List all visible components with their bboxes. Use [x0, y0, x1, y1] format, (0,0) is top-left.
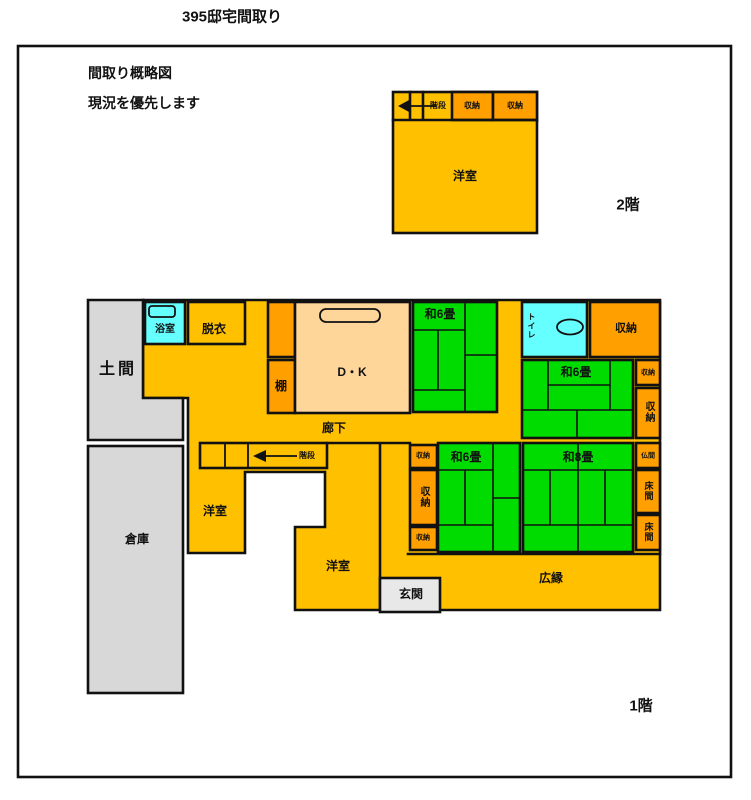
f2-closet2-label: 収納: [507, 102, 523, 110]
f2-closet1-label: 収納: [464, 102, 480, 110]
closet-c-mid-label: 収納: [418, 486, 428, 508]
toilet-bowl-icon: [557, 320, 583, 335]
f2-western-room-label: 洋室: [453, 170, 477, 182]
floor-plan: 395邸宅間取り 間取り概略図 現況を優先します 2階 1階 階段 収納 収納 …: [0, 0, 751, 800]
tatami6-top-label: 和6畳: [425, 308, 456, 320]
page-title: 395邸宅間取り: [182, 10, 282, 25]
note-line2: 現況を優先します: [88, 96, 200, 110]
tatami8-label: 和8畳: [563, 451, 594, 463]
veranda-label: 広縁: [539, 572, 563, 584]
closet-c-bottom-label: 収納: [416, 535, 430, 542]
note-line1: 間取り概略図: [88, 66, 172, 80]
closet-tr-label: 収納: [615, 324, 637, 335]
bathtub-icon: [149, 306, 175, 317]
doma-label: 土間: [99, 362, 137, 378]
stairs-1f-label: 階段: [299, 452, 315, 460]
western-left-label: 洋室: [203, 505, 227, 517]
closet-r-small-label: 収納: [641, 370, 655, 377]
tatami6-right-label: 和6畳: [561, 366, 592, 378]
bath-label: 浴室: [155, 325, 175, 335]
western-bottom-label: 洋室: [326, 560, 350, 572]
warehouse-label: 倉庫: [125, 533, 149, 545]
shelf-label: 棚: [275, 380, 287, 392]
dk-label: D・K: [337, 366, 366, 378]
tokonoma-lower-label: 床間: [644, 522, 653, 542]
closet-c-top-label: 収納: [416, 453, 430, 460]
floor-label-1f: 1階: [629, 699, 652, 714]
floor-plan-drawing: [0, 0, 751, 800]
closet-r-vert-label: 収納: [643, 401, 653, 423]
dressing-label: 脱衣: [202, 323, 226, 335]
f2-stairs-label: 階段: [430, 102, 446, 110]
floor-label-2f: 2階: [616, 198, 639, 213]
kitchen-counter-icon: [320, 309, 380, 322]
f1-warehouse: [88, 446, 183, 693]
tokonoma-upper-label: 床間: [644, 481, 653, 501]
entrance-label: 玄関: [399, 588, 423, 600]
tatami6-bottom-label: 和6畳: [451, 451, 482, 463]
toilet-label: トイレ: [527, 313, 535, 340]
corridor-label: 廊下: [322, 422, 346, 434]
butsuma-label: 仏間: [641, 453, 655, 460]
f1-shelf-upper: [268, 302, 295, 357]
